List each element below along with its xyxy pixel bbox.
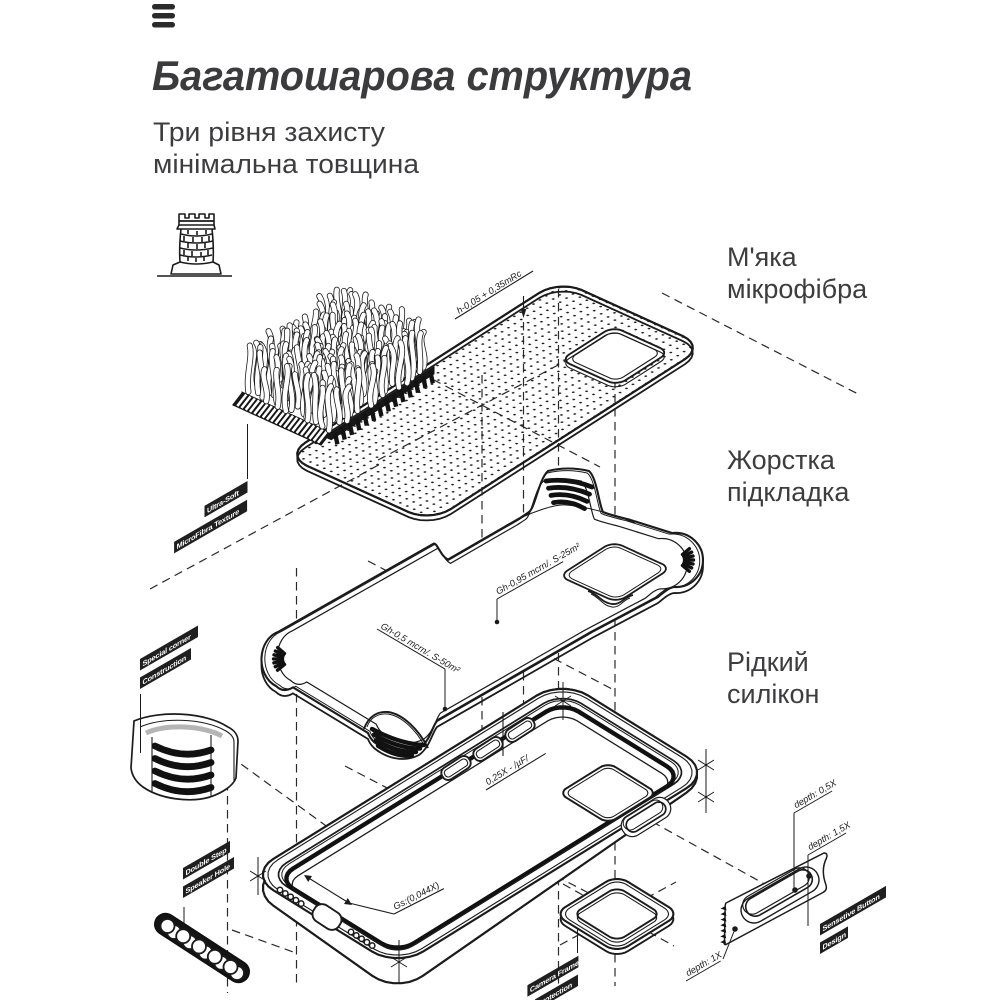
svg-text:мікрофібра: мікрофібра xyxy=(727,274,868,304)
svg-text:силікон: силікон xyxy=(727,679,819,709)
svg-text:М'яка: М'яка xyxy=(727,242,798,272)
svg-text:мінімальна товщина: мінімальна товщина xyxy=(153,149,420,179)
svg-text:Рідкий: Рідкий xyxy=(727,647,809,677)
svg-text:Багатошарова структура: Багатошарова структура xyxy=(152,52,692,99)
svg-text:Жорстка: Жорстка xyxy=(727,445,836,475)
svg-text:підкладка: підкладка xyxy=(727,477,850,507)
svg-text:Три рівня захисту: Три рівня захисту xyxy=(153,117,386,147)
